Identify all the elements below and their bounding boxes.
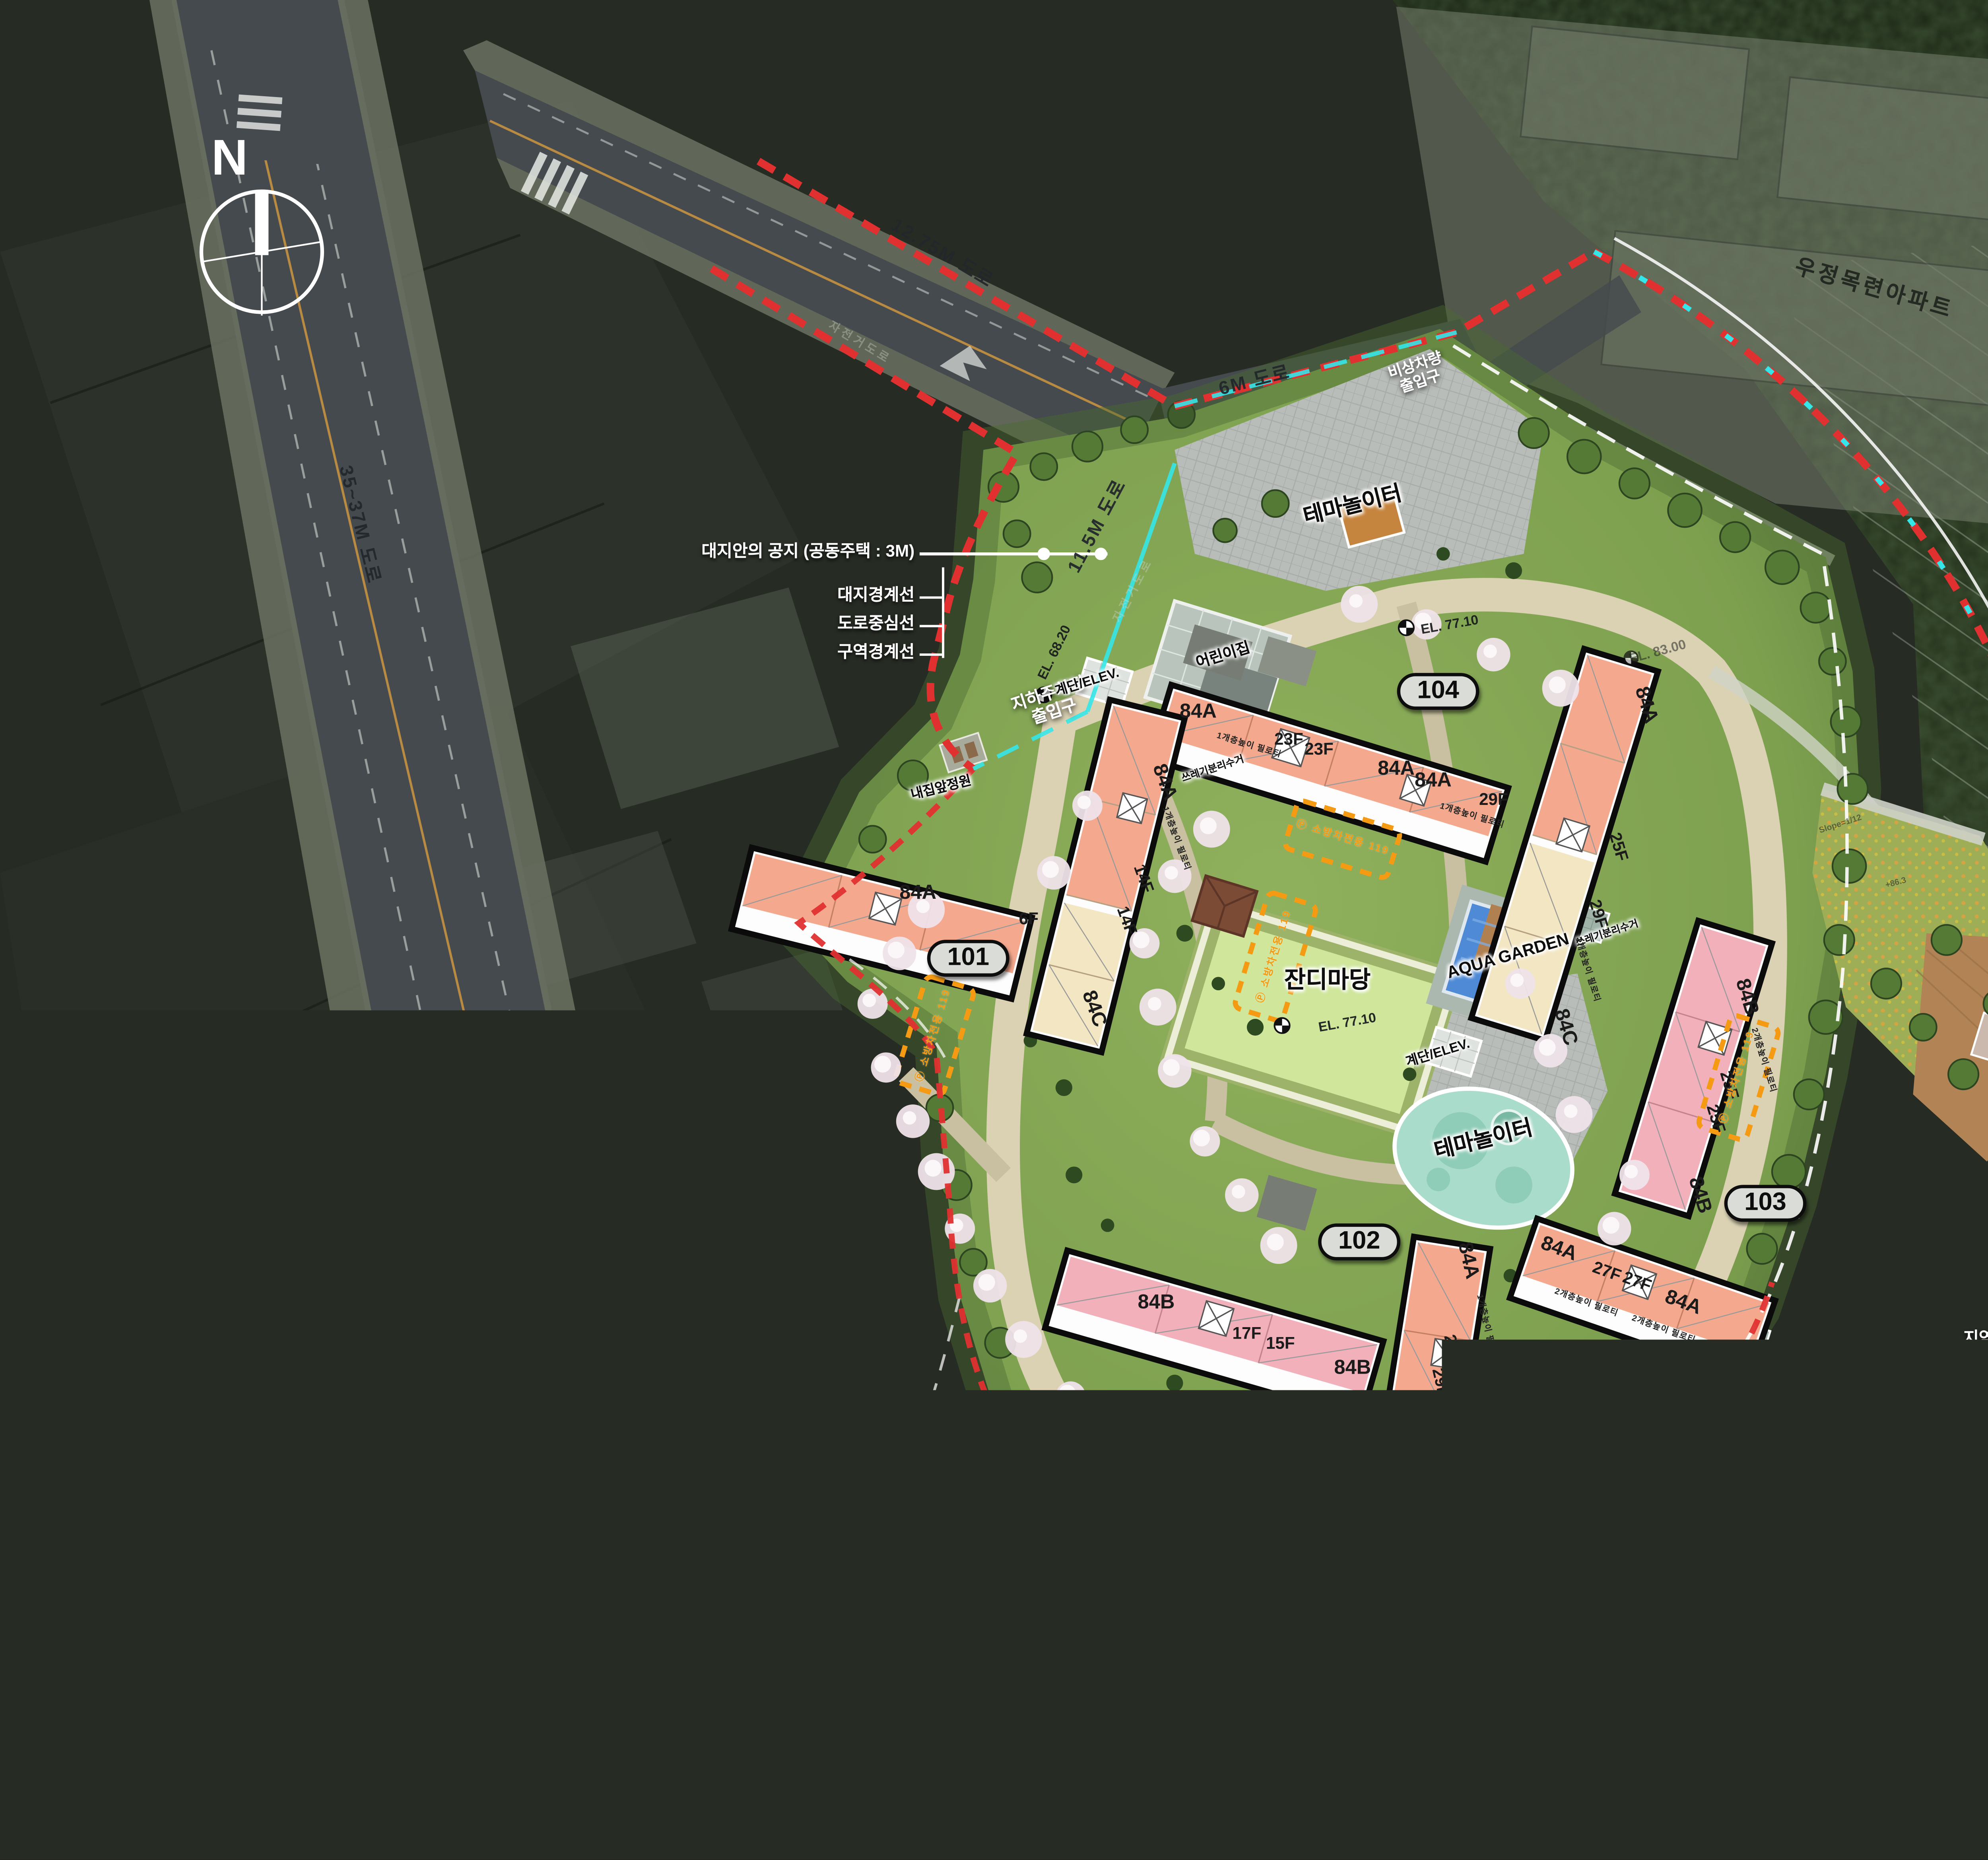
- site-plan-stage: N 35~37M 도로12.75M 도로6M 도로11.5M 도로자전거도로자전…: [0, 0, 1988, 1860]
- compass-rose-icon: [181, 131, 349, 349]
- compass: N: [181, 131, 349, 349]
- site-plan: { "meta": { "plan_type": "apartment-comp…: [0, 0, 1988, 1860]
